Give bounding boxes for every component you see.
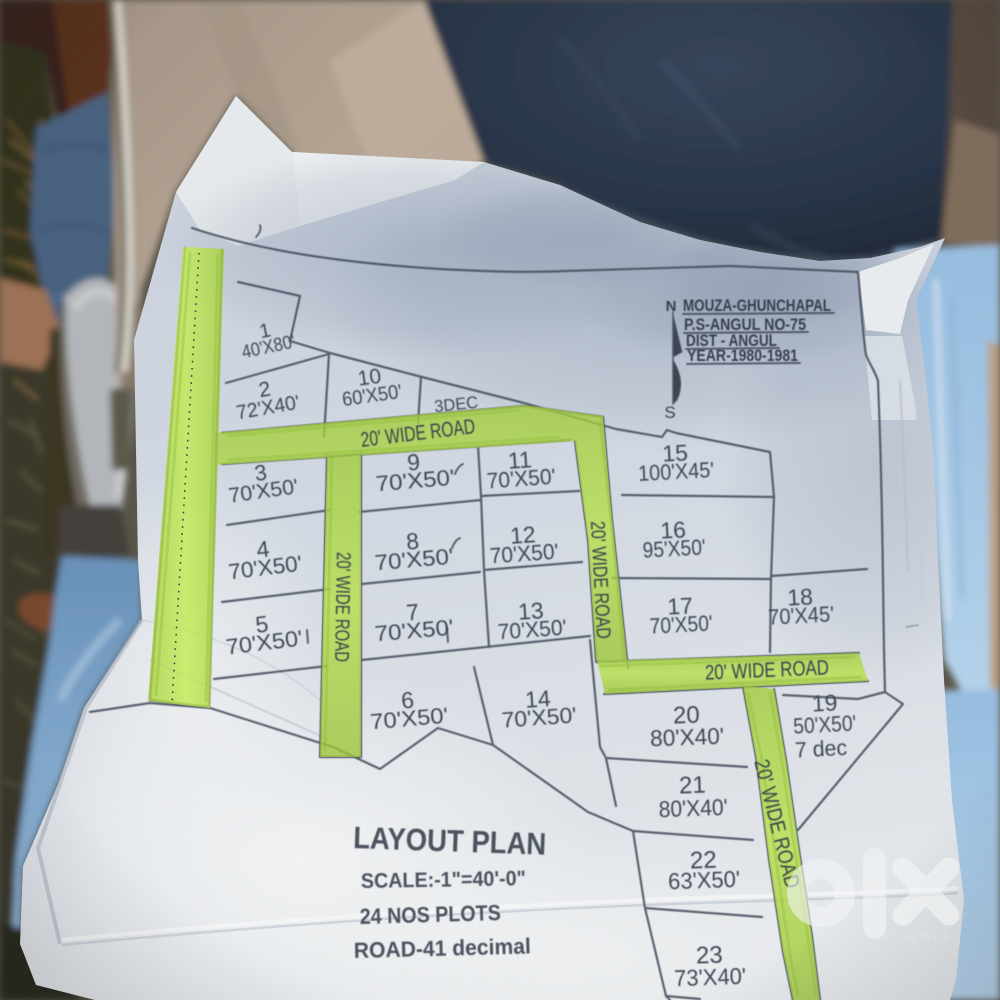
- svg-text:INDIA: INDIA: [900, 932, 954, 944]
